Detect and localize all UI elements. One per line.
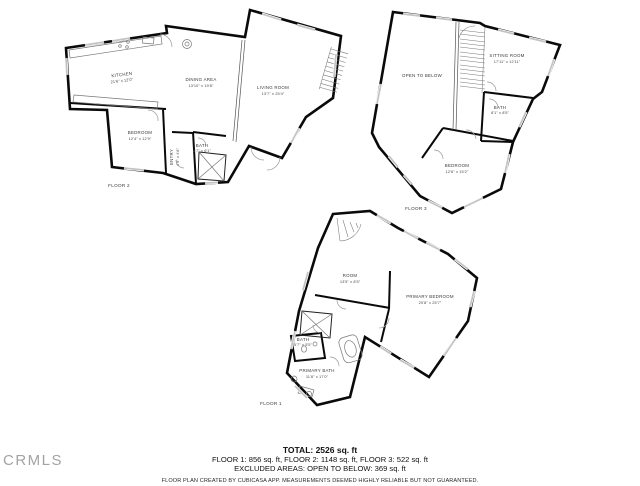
floor-2-label: FLOOR 2 (108, 183, 130, 188)
room-dims-bath-f2: 6'7" x 6'1" (193, 148, 212, 153)
room-dims-dining: 13'10" x 19'8" (189, 83, 214, 88)
room-dims-primary-bath: 11'8" x 17'0" (306, 374, 329, 379)
room-label-dining: DINING AREA (185, 77, 216, 82)
room-label-living: LIVING ROOM (257, 85, 289, 90)
crmls-logo: CRMLS (3, 452, 63, 469)
room-label-sitting-room: SITTING ROOM (489, 53, 524, 58)
room-dims-room: 13'5" x 8'5" (340, 279, 361, 284)
floor-3-outer-walls (372, 12, 560, 213)
room-dims-living: 13'7" x 25'4" (262, 91, 285, 96)
room-dims-primary-bedroom: 20'8" x 25'7" (419, 300, 442, 305)
room-dims-entry: 4'9" x 4'8" (175, 147, 180, 166)
room-label-primary-bedroom: PRIMARY BEDROOM (406, 294, 454, 299)
room-label-primary-bath: PRIMARY BATH (299, 368, 334, 373)
floor-plan-canvas: KITCHEN 21'6" x 12'0" DINING AREA 13'10"… (0, 0, 640, 486)
room-dims-sitting-room: 17'11" x 12'11" (494, 59, 521, 64)
room-dims-bedroom-f3: 12'6" x 15'2" (446, 169, 469, 174)
floor-1-plan: ROOM 13'5" x 8'5" PRIMARY BEDROOM 20'8" … (260, 211, 477, 406)
summary-floor-areas: FLOOR 1: 856 sq. ft, FLOOR 2: 1148 sq. f… (0, 456, 640, 464)
room-label-open-to-below: OPEN TO BELOW (402, 73, 443, 78)
floor-3-plan: OPEN TO BELOW SITTING ROOM 17'11" x 12'1… (372, 12, 560, 213)
room-label-bedroom-f2: BEDROOM (128, 130, 153, 135)
disclaimer-text: FLOOR PLAN CREATED BY CUBICASA APP. MEAS… (0, 478, 640, 484)
floor-1-label: FLOOR 1 (260, 401, 282, 406)
room-dims-bedroom-f2: 12'4" x 12'9" (129, 136, 152, 141)
room-dims-bath-f1: 5'7" x 5'5" (294, 342, 313, 347)
floor-3-label: FLOOR 3 (405, 206, 427, 211)
summary-excluded-areas: EXCLUDED AREAS: OPEN TO BELOW: 369 sq. f… (0, 465, 640, 473)
summary-total: TOTAL: 2526 sq. ft (0, 446, 640, 455)
floor-plan-page: KITCHEN 21'6" x 12'0" DINING AREA 13'10"… (0, 0, 640, 486)
floor-2-outer-walls (66, 10, 341, 184)
room-label-entry: ENTRY (169, 149, 174, 165)
room-dims-bath-f3: 8'1" x 8'5" (491, 110, 510, 115)
room-label-room: ROOM (343, 273, 358, 278)
room-label-bedroom-f3: BEDROOM (445, 163, 470, 168)
floor-2-plan: KITCHEN 21'6" x 12'0" DINING AREA 13'10"… (66, 10, 349, 188)
